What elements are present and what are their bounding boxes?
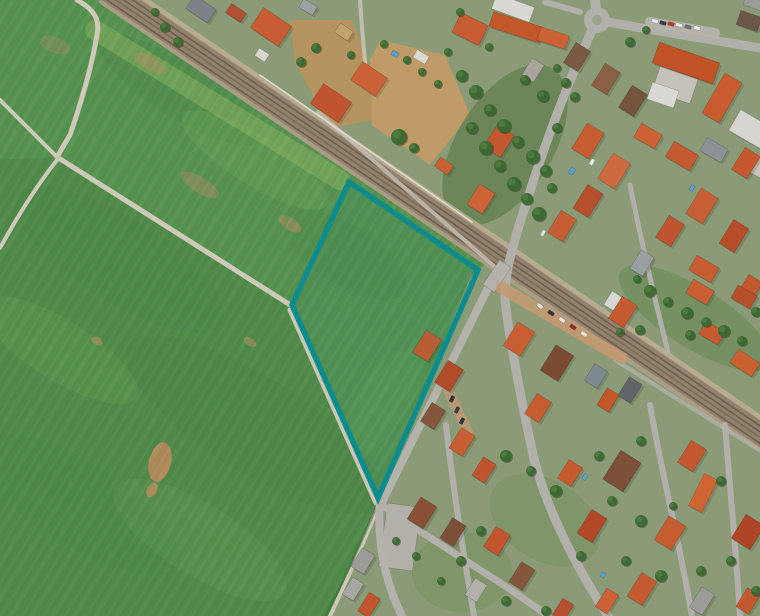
tree-highlight [553, 124, 558, 129]
tree-highlight [297, 58, 302, 63]
tree-highlight [527, 151, 534, 158]
tree-highlight [348, 52, 352, 56]
tree-highlight [152, 9, 156, 13]
road [592, 15, 602, 25]
tree-highlight [485, 105, 491, 111]
tree-highlight [521, 76, 526, 81]
tree-highlight [445, 49, 449, 53]
tree-highlight [571, 93, 576, 98]
tree-highlight [634, 276, 638, 280]
tree-highlight [161, 23, 166, 28]
tree-highlight [664, 298, 669, 303]
tree-highlight [513, 137, 519, 143]
tree-highlight [697, 567, 702, 572]
tree-highlight [381, 41, 385, 45]
tree-highlight [467, 123, 473, 129]
tree-highlight [554, 65, 558, 69]
tree-highlight [626, 38, 631, 43]
tree-highlight [312, 44, 317, 49]
tree-highlight [495, 161, 501, 167]
tree-highlight [538, 91, 544, 97]
tree-highlight [686, 331, 691, 336]
tree-highlight [542, 607, 547, 612]
tree-highlight [457, 71, 463, 77]
tree-highlight [404, 57, 408, 61]
tree-highlight [498, 120, 505, 127]
tree-highlight [480, 142, 487, 149]
tree-highlight [670, 503, 674, 507]
tree-highlight [637, 437, 642, 442]
tree-highlight [502, 597, 507, 602]
tree-highlight [738, 337, 743, 342]
tree-highlight [656, 571, 662, 577]
tree-highlight [702, 318, 707, 323]
tree-highlight [477, 527, 482, 532]
tree-highlight [636, 516, 642, 522]
tree-highlight [457, 557, 462, 562]
tree-highlight [622, 557, 627, 562]
tree-highlight [393, 131, 401, 139]
tree-highlight [174, 38, 179, 43]
tree-highlight [501, 451, 507, 457]
tree-highlight [682, 308, 688, 314]
tree-highlight [643, 27, 647, 31]
tree-highlight [645, 286, 651, 292]
tree-highlight [527, 467, 532, 472]
tree-highlight [608, 497, 613, 502]
tree-highlight [551, 486, 557, 492]
tree-highlight [533, 208, 540, 215]
tree-highlight [457, 9, 461, 13]
tree-highlight [419, 69, 423, 73]
aerial-imagery[interactable] [0, 0, 760, 616]
satellite-map-view[interactable] [0, 0, 760, 616]
tree-highlight [470, 86, 477, 93]
tree-highlight [562, 79, 567, 84]
tree-highlight [435, 81, 439, 85]
tree-highlight [522, 194, 528, 200]
tree-highlight [617, 329, 621, 333]
tree-highlight [719, 326, 725, 332]
tree-highlight [541, 166, 547, 172]
tree-highlight [548, 184, 553, 189]
tree-highlight [727, 557, 732, 562]
tree-highlight [486, 44, 490, 48]
tree-highlight [413, 553, 417, 557]
tree-highlight [438, 578, 442, 582]
tree-highlight [508, 178, 515, 185]
tree-highlight [752, 308, 757, 313]
tree-highlight [595, 452, 600, 457]
tree-highlight [752, 587, 757, 592]
tree-highlight [393, 538, 397, 542]
tree-highlight [577, 552, 582, 557]
tree-highlight [636, 326, 641, 331]
tree-highlight [717, 477, 722, 482]
tree-highlight [410, 144, 415, 149]
